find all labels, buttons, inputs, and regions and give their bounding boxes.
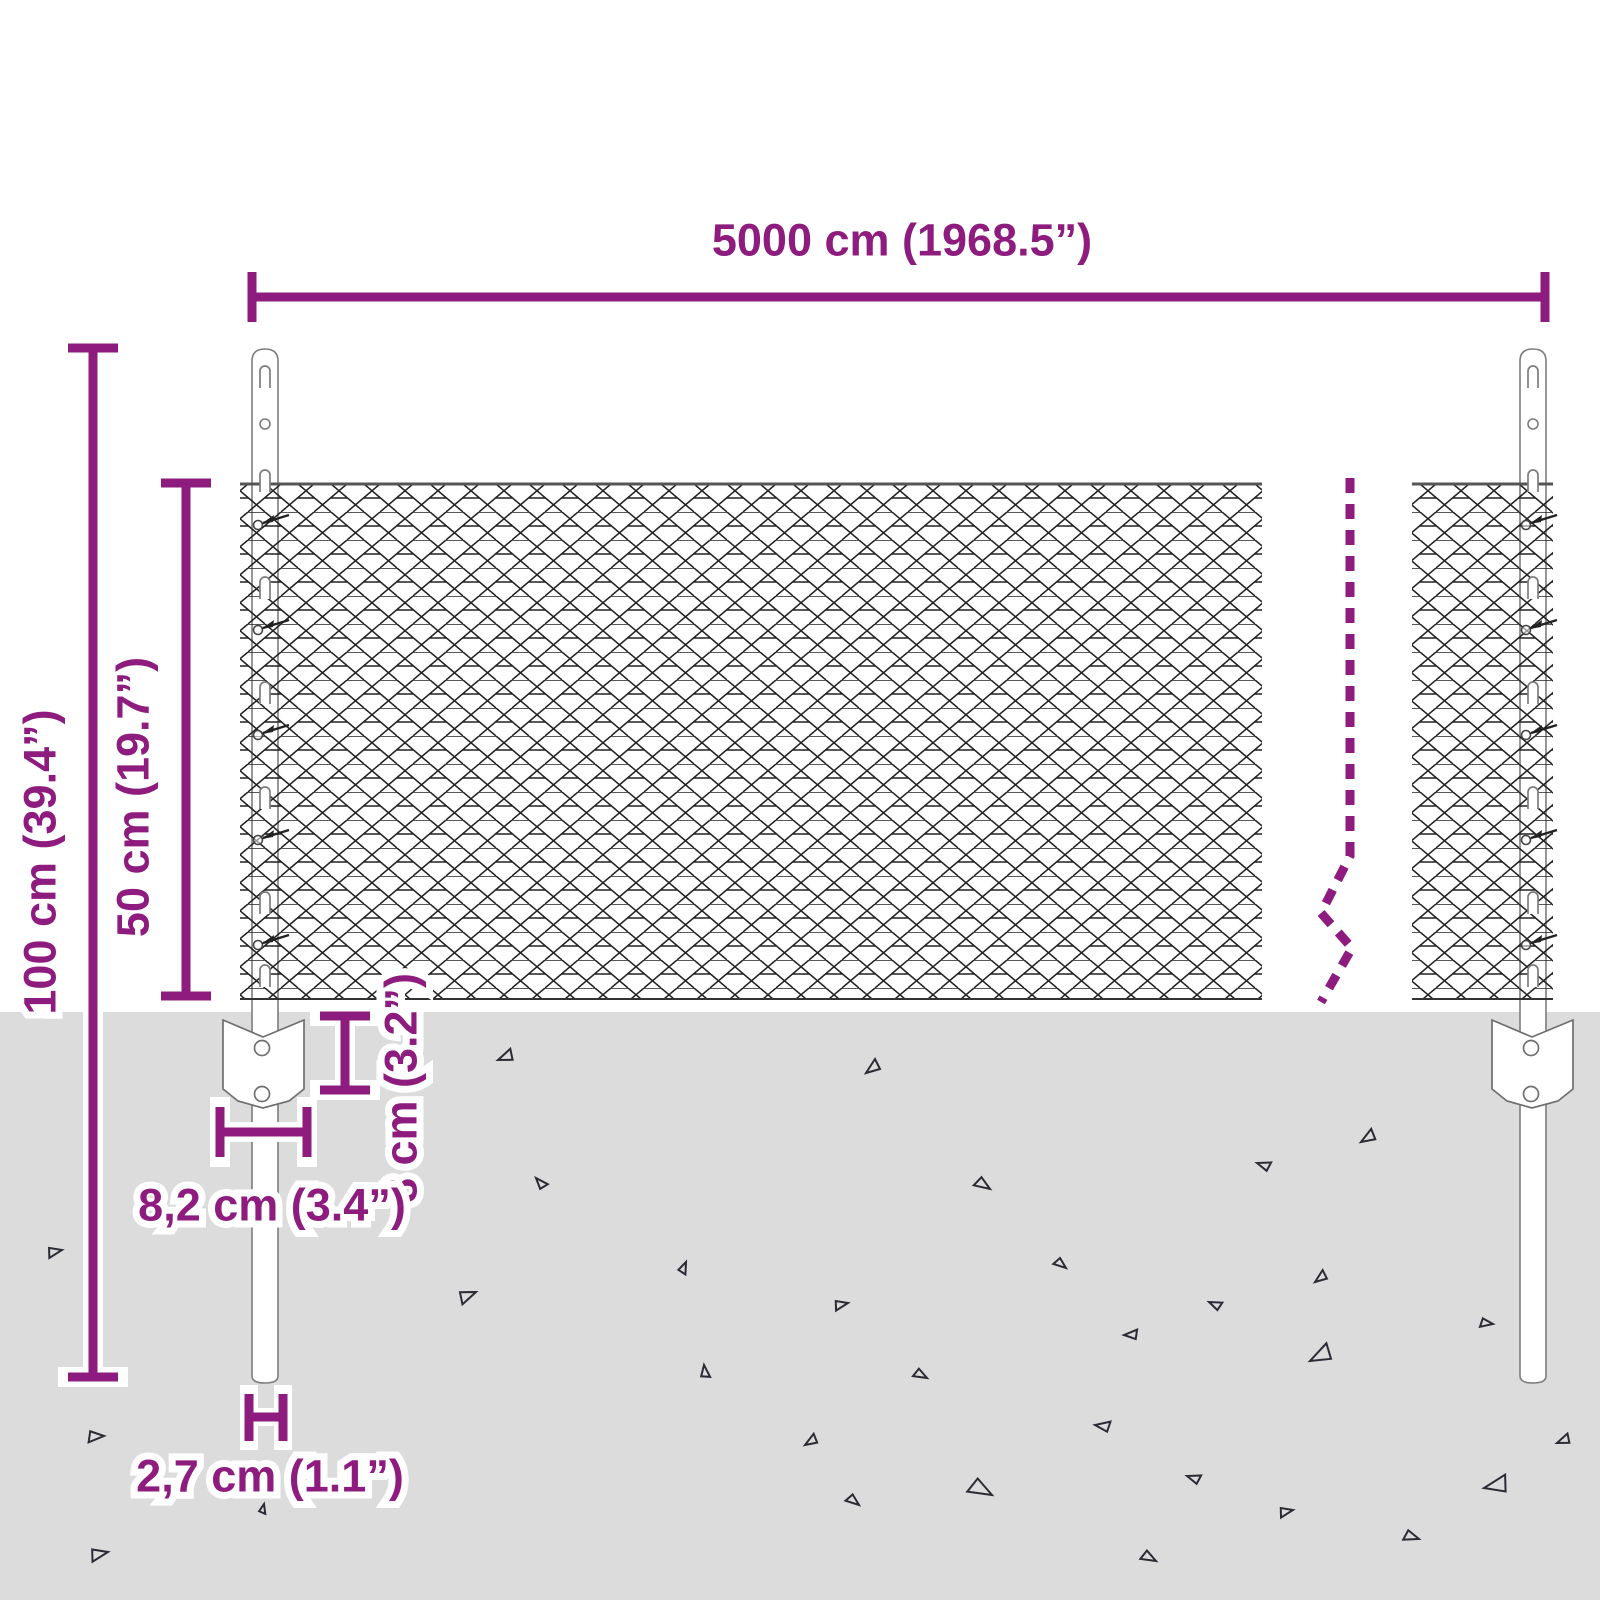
mesh-height-label: 50 cm (19.7”) 50 cm (19.7”) — [111, 657, 156, 937]
mesh-panel-right — [1412, 483, 1553, 1000]
break-line — [1321, 478, 1352, 1002]
total-width-label: 5000 cm (1968.5”) 5000 cm (1968.5”) — [712, 218, 1092, 263]
post-width-label: 2,7 cm (1.1”) 2,7 cm (1.1”) — [136, 1454, 404, 1499]
anchor-depth-label: 8 cm (3.2”) 8 cm (3.2”) — [379, 973, 424, 1203]
dimension-mesh-height-line — [161, 483, 211, 996]
dimension-total-width-line — [252, 272, 1545, 322]
total-height-label: 100 cm (39.4”) 100 cm (39.4”) — [18, 709, 63, 1014]
fence-dimension-diagram: 5000 cm (1968.5”) 5000 cm (1968.5”) 100 … — [0, 0, 1600, 1600]
mesh-panel-main — [240, 483, 1262, 1000]
anchor-width-label: 8,2 cm (3.4”) 8,2 cm (3.4”) — [138, 1183, 406, 1228]
